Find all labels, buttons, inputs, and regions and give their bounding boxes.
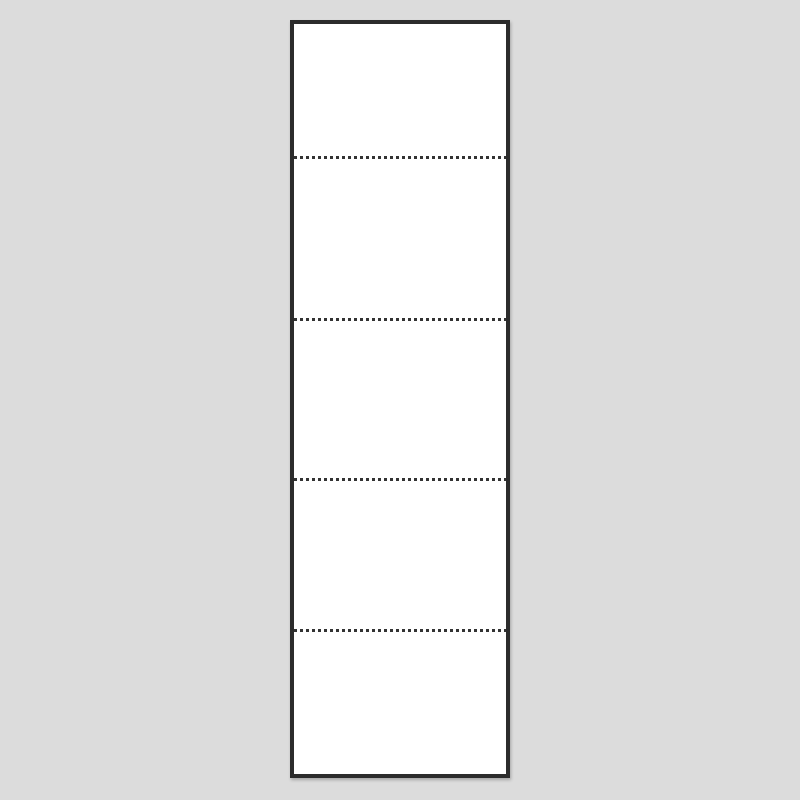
panel-2 <box>294 157 506 319</box>
panel-4 <box>294 479 506 630</box>
panel-3 <box>294 319 506 479</box>
panel-5 <box>294 630 506 774</box>
perforation-line-1 <box>294 156 506 159</box>
paper-strip <box>290 20 510 778</box>
panel-1 <box>294 24 506 157</box>
perforation-line-4 <box>294 629 506 632</box>
perforation-line-2 <box>294 318 506 321</box>
perforation-line-3 <box>294 478 506 481</box>
canvas-background <box>0 0 800 800</box>
